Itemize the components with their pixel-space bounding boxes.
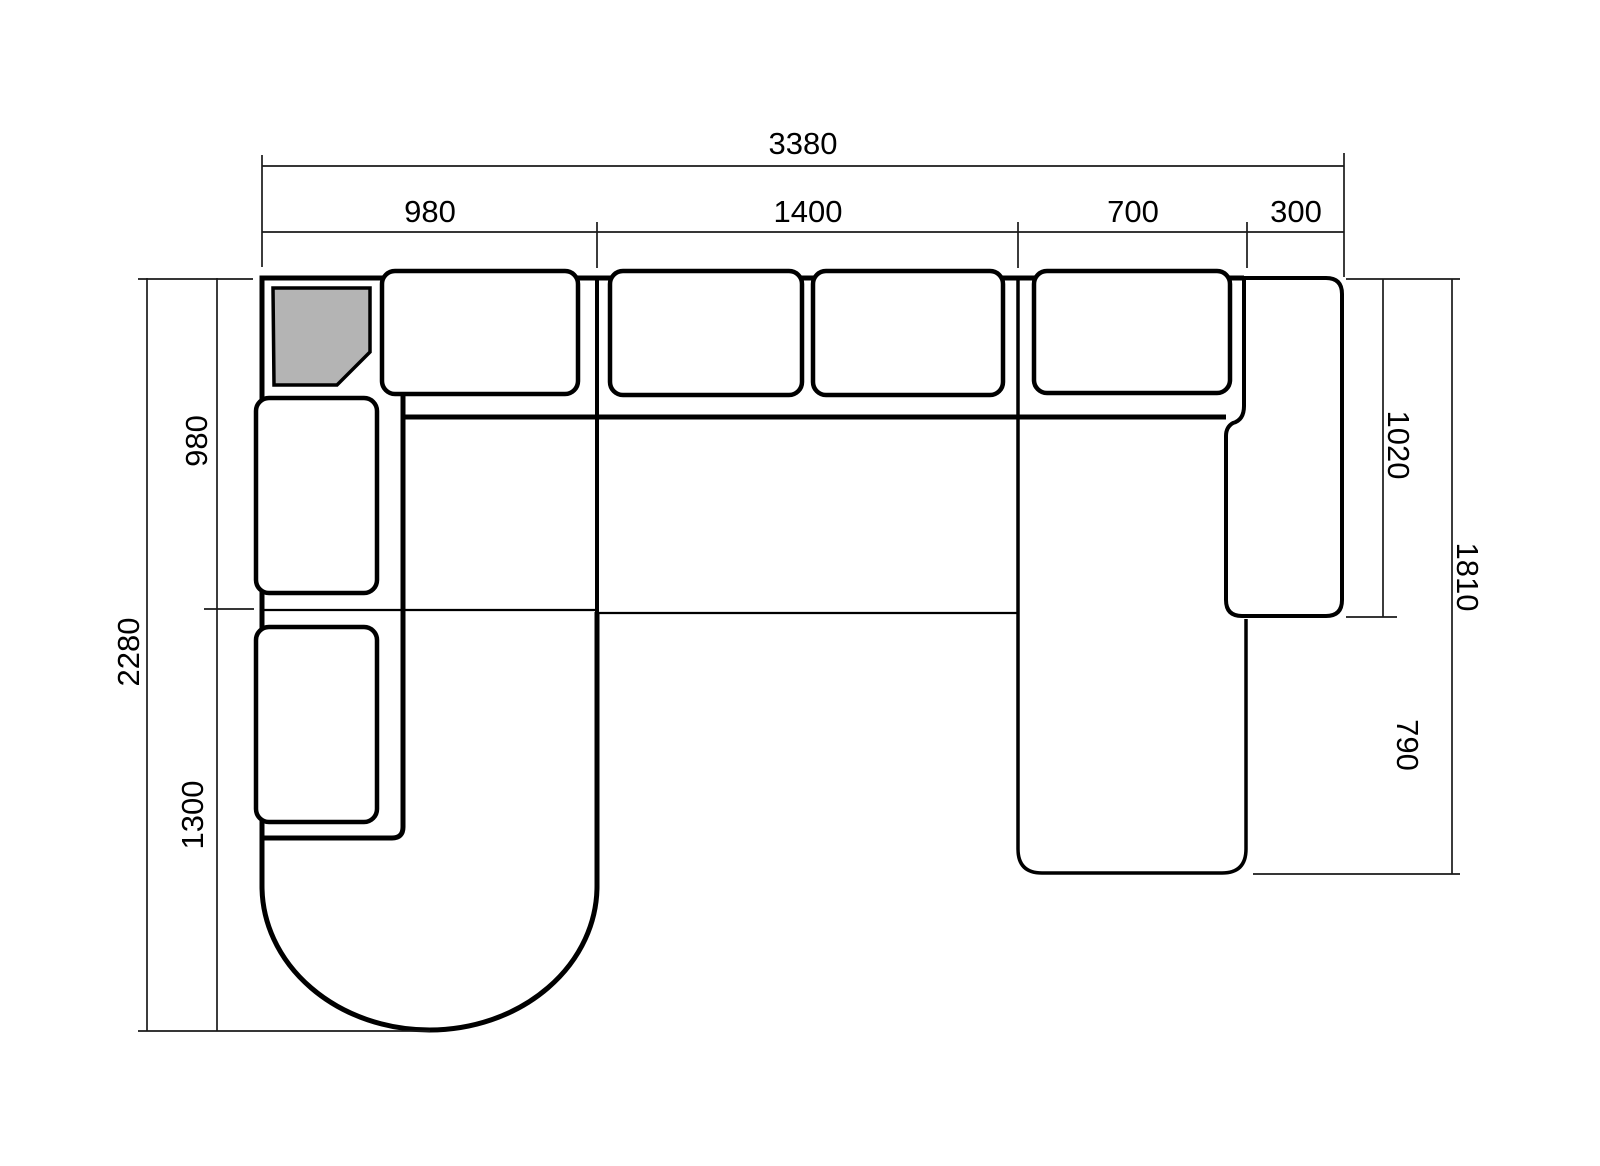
back-cushion-2 (610, 271, 802, 395)
back-cushion-3 (813, 271, 1003, 395)
dim-label-top-total: 3380 (769, 126, 838, 161)
dim-label-top-seg-4: 300 (1270, 194, 1322, 229)
back-cushion-1 (382, 271, 578, 394)
sofa-dimension-diagram: 3380 980 1400 700 300 2280 980 1300 1020… (0, 0, 1600, 1166)
dim-label-top-seg-2: 1400 (774, 194, 843, 229)
dim-label-top-seg-3: 700 (1107, 194, 1159, 229)
dim-label-left-seg-2: 1300 (175, 781, 210, 850)
dim-label-right-lower: 790 (1390, 719, 1425, 771)
left-cushion-1 (256, 398, 377, 593)
diagram-canvas: 3380 980 1400 700 300 2280 980 1300 1020… (0, 0, 1600, 1166)
corner-table (273, 288, 370, 385)
back-cushion-4 (1034, 271, 1230, 393)
dim-label-right-total: 1810 (1450, 543, 1485, 612)
left-cushion-2 (256, 627, 377, 822)
dim-label-right-upper: 1020 (1381, 411, 1416, 480)
dim-label-top-seg-1: 980 (404, 194, 456, 229)
dim-label-left-seg-1: 980 (179, 415, 214, 467)
dim-label-left-total: 2280 (111, 618, 146, 687)
right-armrest (1226, 278, 1342, 616)
